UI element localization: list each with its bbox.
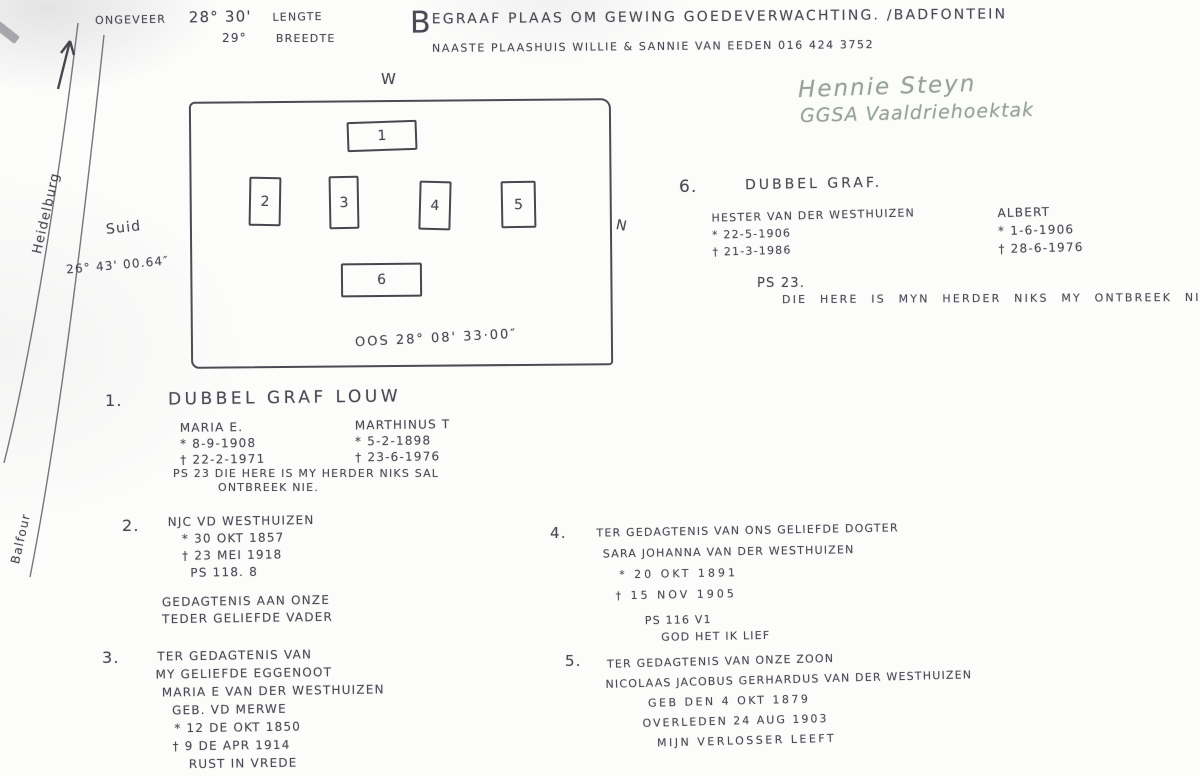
entry-line: † 22-2-1971	[180, 449, 355, 467]
entry-line: † 15 NOV 1905	[615, 580, 900, 606]
entry-6-psalm-ref: PS 23.	[757, 276, 805, 291]
entry-line: * 30 OKT 1857	[182, 529, 315, 548]
entry-line: * 1-6-1906	[998, 220, 1084, 240]
page-subtitle: NAASTE PLAASHUIS WILLIE & SANNIE VAN EED…	[432, 38, 874, 55]
entry-line: NJC VD WESTHUIZEN	[168, 512, 315, 531]
entry-1-left-column: MARIA E. * 8-9-1908 † 22-2-1971	[180, 417, 356, 467]
entry-2-block2: GEDAGTENIS AAN ONZE TEDER GELIEFDE VADER	[162, 592, 333, 628]
entry-line: † 28-6-1976	[998, 238, 1084, 258]
grave-plot-6-number: 6	[377, 272, 386, 288]
map-south-label: Suid	[105, 218, 142, 238]
entry-6-left-column: HESTER VAN DER WESTHUIZEN * 22-5-1906 † …	[711, 204, 916, 260]
grave-plot-3: 3	[329, 176, 360, 230]
entry-6-right-column: ALBERT * 1-6-1906 † 28-6-1976	[997, 202, 1084, 258]
entry-3-block: TER GEDAGTENIS VAN MY GELIEFDE EGGENOOT …	[151, 644, 386, 773]
header-coordinates-line2: 29° BREEDTE	[222, 31, 336, 45]
entry-4-block2: PS 116 V1 GOD HET IK LIEF	[645, 610, 771, 646]
ongeveer-label: ONGEVEER	[95, 13, 166, 27]
entry-line: RUST IN VREDE	[189, 752, 386, 773]
entry-1-psalm-line2: ONTBREEK NIE.	[218, 481, 319, 494]
entry-1-psalm-line1: PS 23 DIE HERE IS MY HERDER NIKS SAL	[173, 467, 439, 480]
map-west-label: W	[381, 70, 397, 88]
north-arrow-icon	[58, 41, 74, 89]
entry-line: TEDER GELIEFDE VADER	[162, 609, 333, 628]
entry-1-columns: MARIA E. * 8-9-1908 † 22-2-1971 MARTHINU…	[180, 416, 451, 468]
entry-line: ALBERT	[997, 202, 1083, 222]
entry-line: † 23 MEI 1918	[182, 546, 315, 565]
entry-line: PS 116 V1	[645, 610, 770, 629]
grave-plot-4-number: 4	[430, 197, 439, 213]
entry-line: † 23-6-1976	[355, 448, 451, 465]
grave-plot-2-number: 2	[260, 193, 269, 209]
grave-plot-5-number: 5	[514, 196, 523, 212]
grave-plot-1: 1	[346, 120, 417, 152]
entry-5-block: TER GEDAGTENIS VAN ONZE ZOON NICOLAAS JA…	[607, 645, 974, 755]
entry-line: MARIA E VAN DER WESTHUIZEN	[162, 680, 385, 701]
page-title: BEGRAAF PLAAS OM GEWING GOEDEVERWACHTING…	[410, 3, 1008, 38]
entry-2-number: 2.	[122, 516, 140, 535]
entry-line: PS 118. 8	[190, 563, 315, 582]
entry-5-number: 5.	[565, 652, 582, 670]
longitude-value: 28° 30'	[189, 7, 252, 26]
entry-4-block1: TER GEDAGTENIS VAN ONS GELIEFDE DOGTER S…	[596, 517, 900, 606]
grave-plot-4: 4	[418, 181, 451, 231]
grave-plot-6: 6	[341, 263, 422, 298]
grave-plot-5: 5	[501, 181, 537, 229]
entry-line: MARTHINUS T	[355, 416, 451, 433]
entry-1-number: 1.	[105, 391, 123, 410]
entry-6-title: DUBBEL GRAF.	[745, 175, 882, 193]
page-title-initial: B	[410, 5, 432, 40]
entry-2-block1: NJC VD WESTHUIZEN * 30 OKT 1857 † 23 MEI…	[168, 512, 316, 582]
grave-plot-2: 2	[249, 177, 282, 227]
scanned-cemetery-sketch-page: Heidelburg Balfour ONGEVEER 28° 30' LENG…	[0, 0, 1200, 776]
entry-3-number: 3.	[102, 648, 120, 667]
annotator-organisation: GGSA Vaaldriehoektak	[800, 99, 1035, 127]
page-title-rest: EGRAAF PLAAS OM GEWING GOEDEVERWACHTING.…	[432, 6, 1008, 27]
grave-plot-1-number: 1	[377, 128, 386, 144]
lengte-label: LENGTE	[272, 10, 323, 24]
entry-line: * 5-2-1898	[355, 432, 451, 449]
entry-1-right-column: MARTHINUS T * 5-2-1898 † 23-6-1976	[355, 416, 451, 465]
entry-1-title: DUBBEL GRAF LOUW	[168, 386, 401, 409]
entry-4-number: 4.	[550, 524, 567, 542]
map-north-label: N	[614, 217, 629, 235]
latitude-value: 29°	[222, 31, 247, 45]
entry-6-number: 6.	[679, 177, 698, 197]
entry-line: GOD HET IK LIEF	[661, 627, 770, 646]
breedte-label: BREEDTE	[276, 32, 336, 45]
annotator-name: Hennie Steyn	[798, 71, 977, 103]
entry-6-psalm-text: DIE HERE IS MYN HERDER NIKS MY ONTBREEK …	[782, 291, 1200, 306]
header-coordinates-line1: ONGEVEER 28° 30' LENGTE	[95, 6, 323, 28]
grave-plot-3-number: 3	[339, 194, 348, 210]
